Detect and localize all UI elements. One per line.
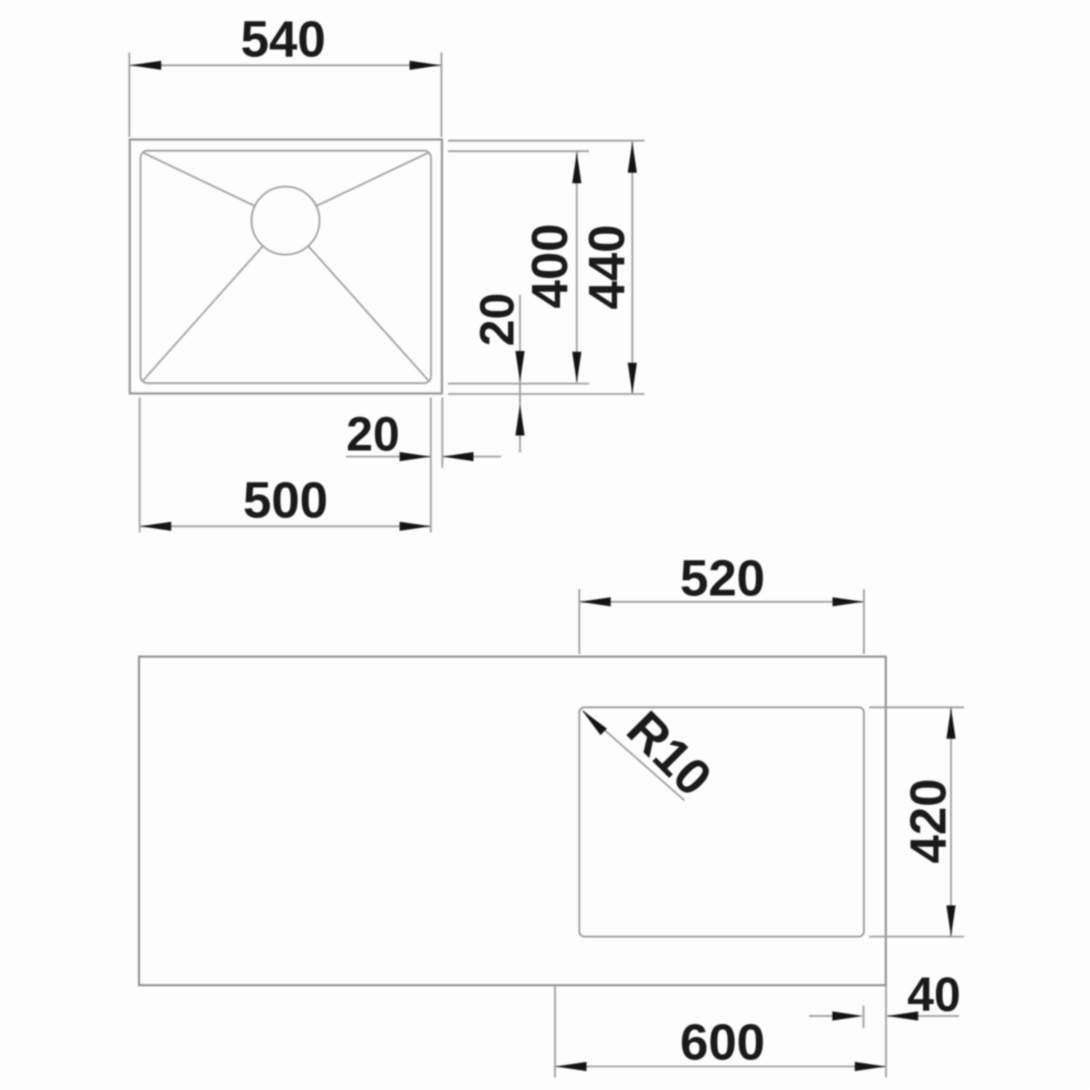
- svg-text:440: 440: [578, 224, 635, 309]
- svg-text:520: 520: [680, 550, 765, 607]
- svg-text:600: 600: [680, 1014, 765, 1071]
- svg-text:540: 540: [241, 11, 326, 68]
- svg-text:420: 420: [900, 778, 957, 863]
- svg-text:20: 20: [346, 409, 399, 462]
- svg-text:500: 500: [243, 472, 328, 529]
- svg-text:40: 40: [907, 969, 960, 1022]
- svg-text:400: 400: [521, 223, 578, 308]
- svg-text:20: 20: [472, 293, 525, 346]
